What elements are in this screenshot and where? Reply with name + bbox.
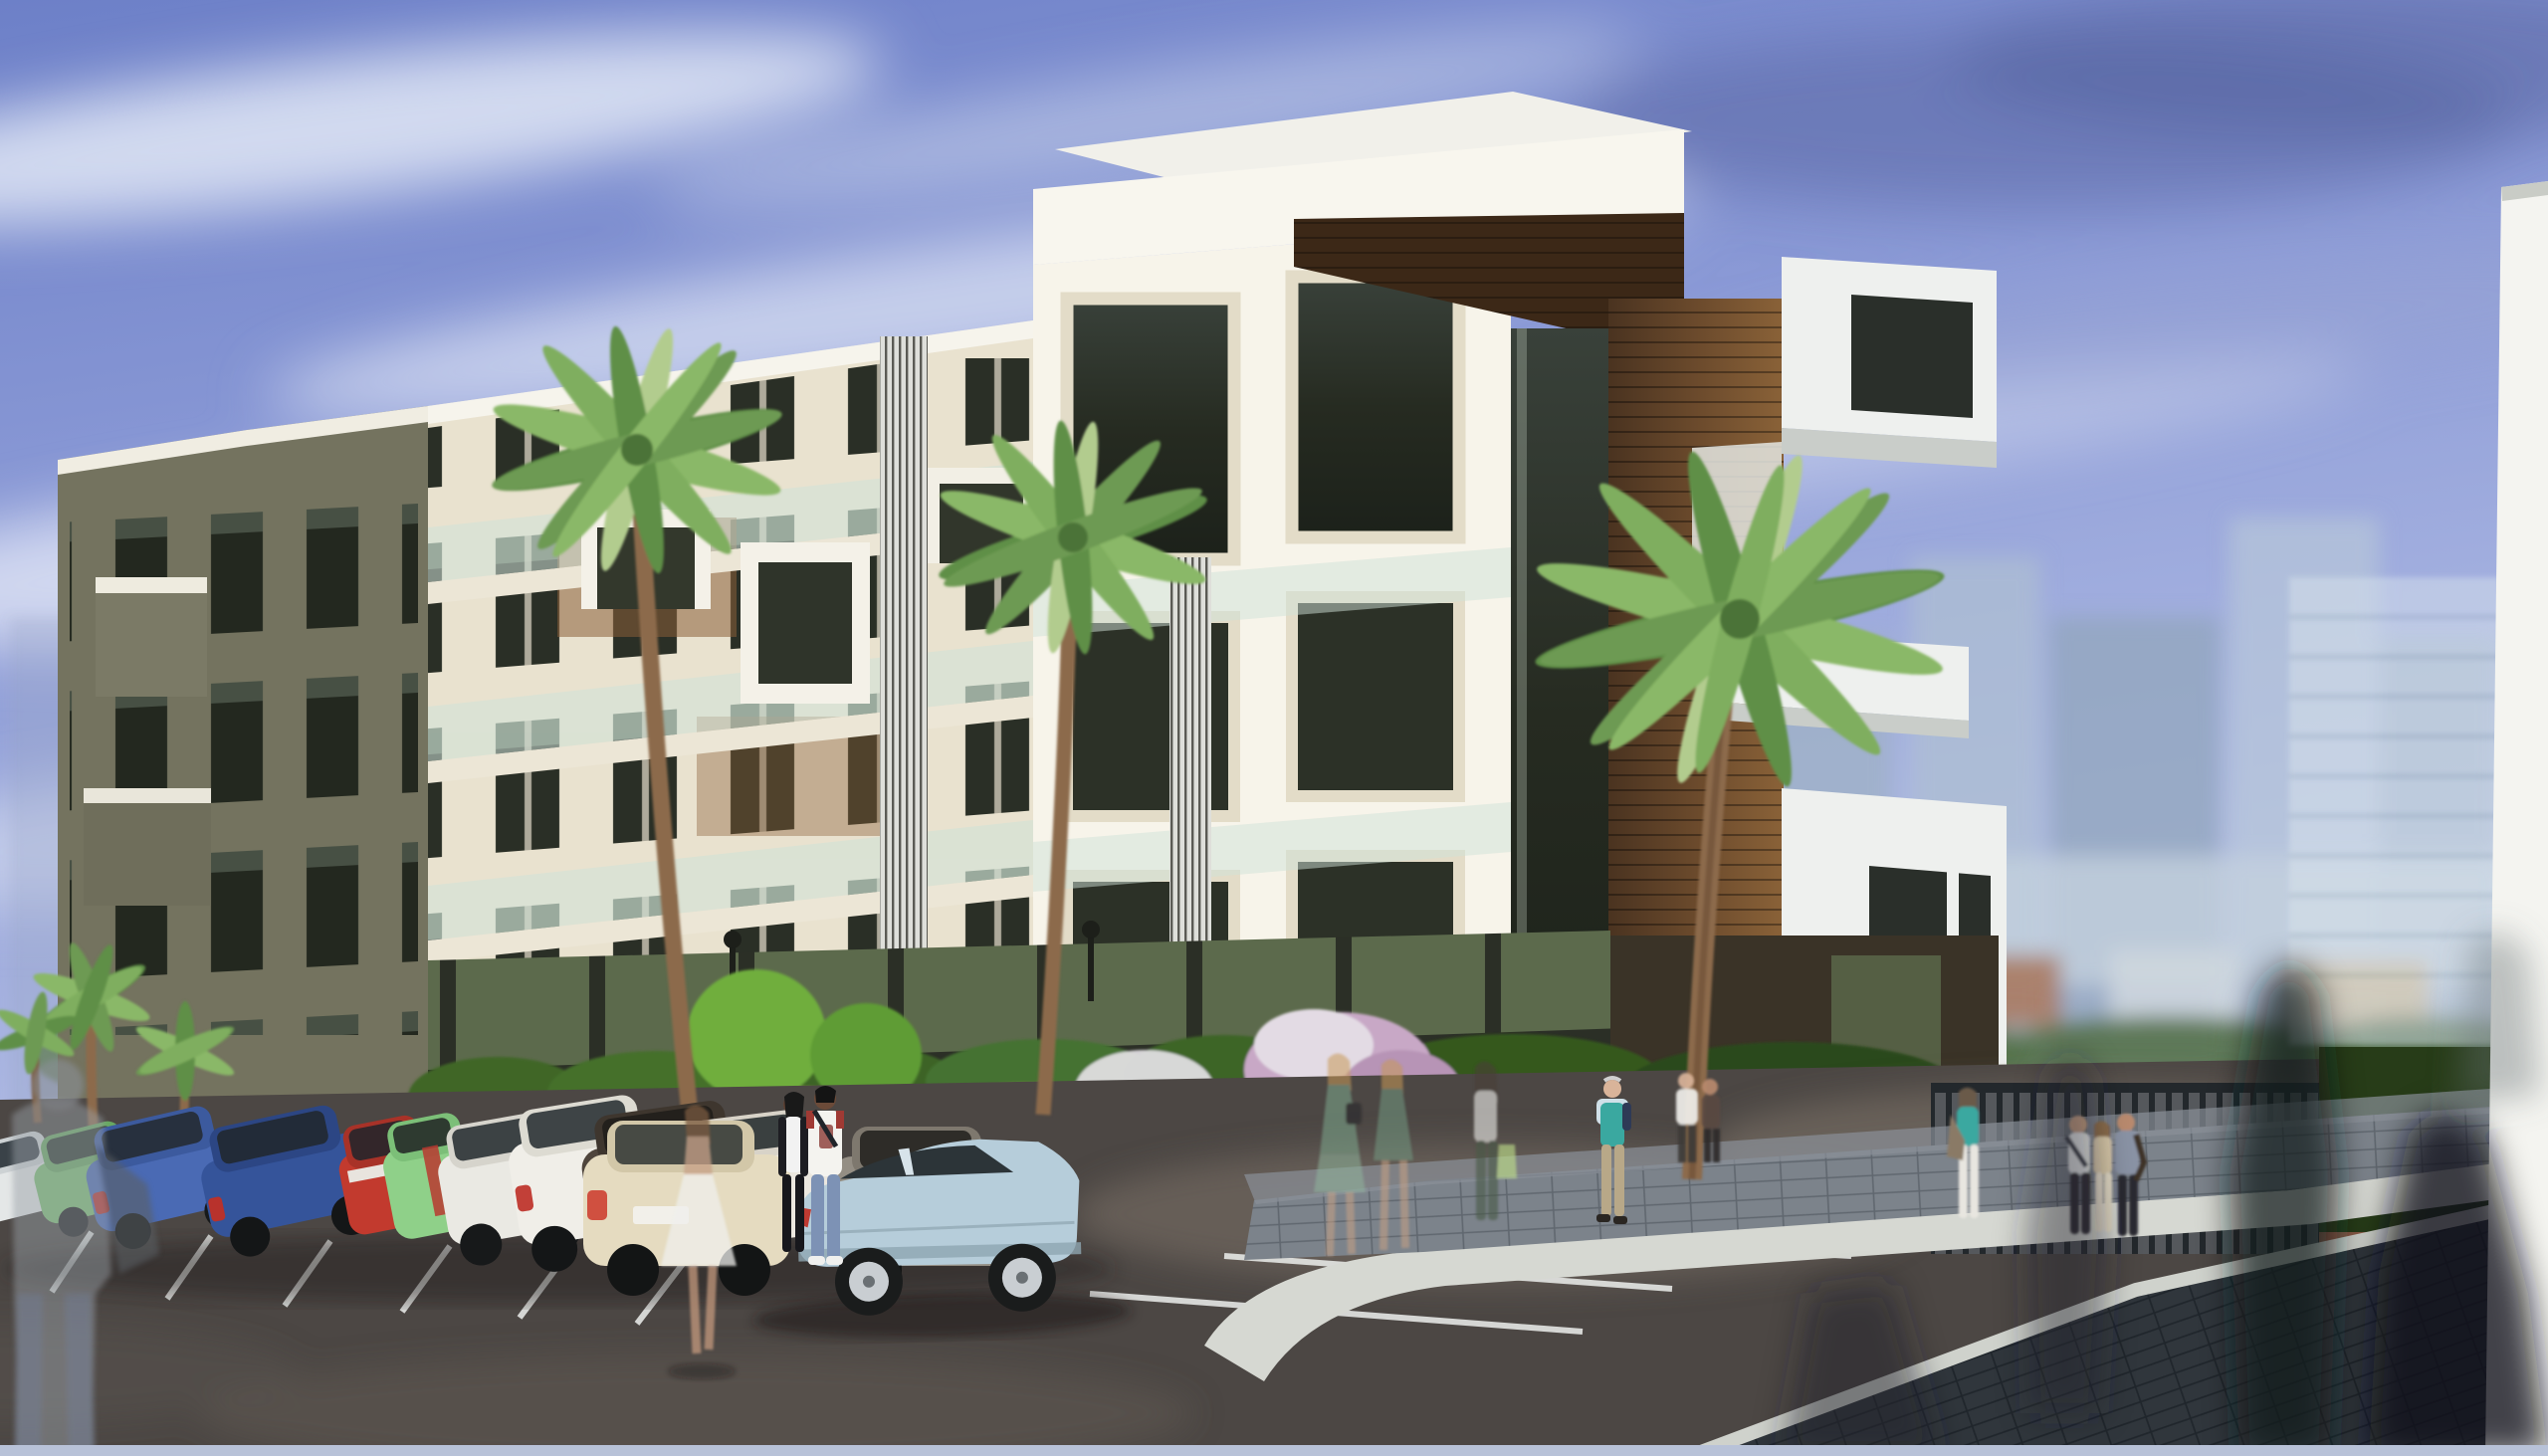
camera bbox=[1346, 1103, 1362, 1125]
blur-figure-4 bbox=[2458, 933, 2540, 1105]
bottom-edge-strip bbox=[0, 1445, 2548, 1456]
backpack-strap bbox=[1622, 1103, 1631, 1131]
architectural-render-scene bbox=[0, 0, 2548, 1456]
far-end-windows bbox=[70, 478, 418, 1035]
render-canvas bbox=[0, 0, 2548, 1456]
round-tree bbox=[687, 969, 826, 1101]
